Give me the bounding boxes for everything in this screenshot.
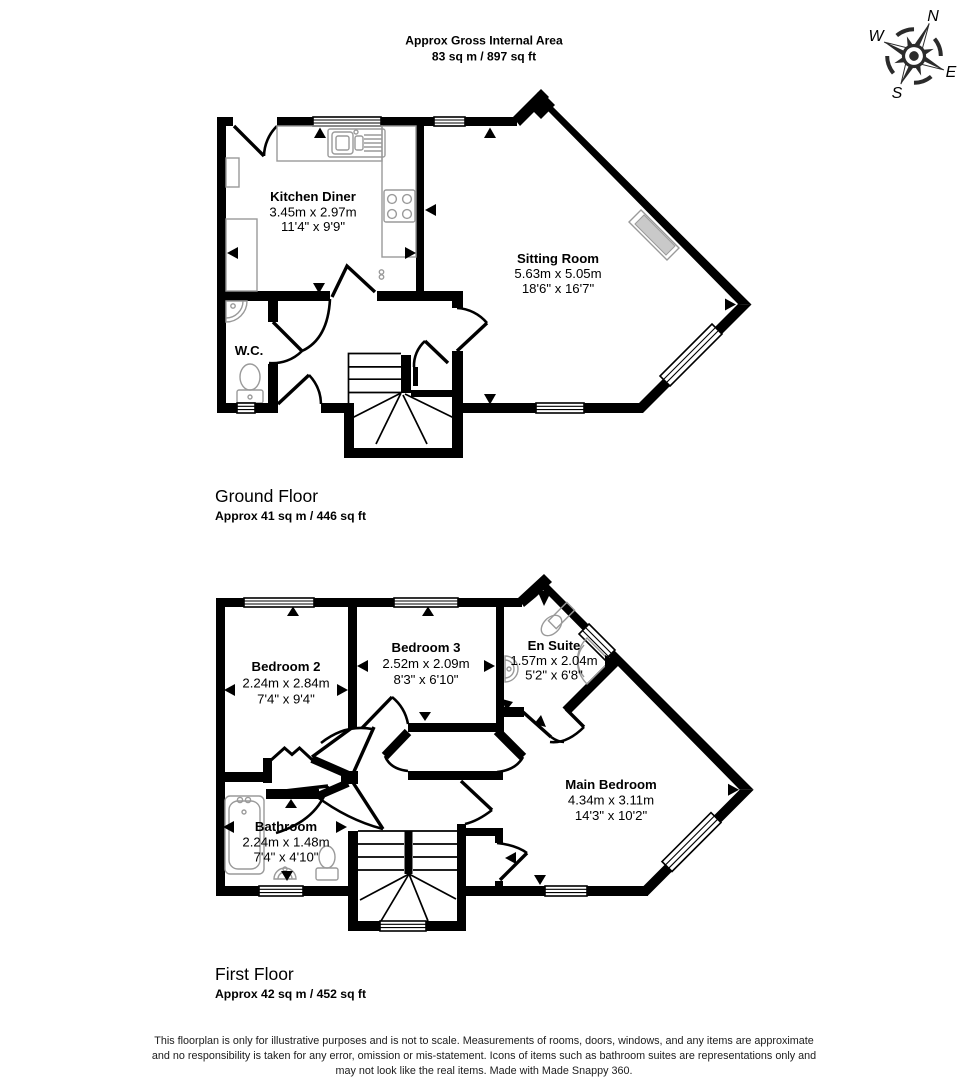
- svg-text:5'2" x 6'8": 5'2" x 6'8": [525, 668, 583, 683]
- svg-text:E: E: [946, 64, 957, 81]
- svg-text:This floorplan is only for ill: This floorplan is only for illustrative …: [154, 1035, 814, 1047]
- svg-text:1.57m x 2.04m: 1.57m x 2.04m: [510, 653, 597, 668]
- svg-text:4.34m x 3.11m: 4.34m x 3.11m: [568, 793, 654, 808]
- svg-text:Approx 42 sq m / 452 sq ft: Approx 42 sq m / 452 sq ft: [215, 987, 366, 1001]
- svg-text:Sitting Room: Sitting Room: [517, 251, 599, 266]
- svg-text:N: N: [927, 8, 939, 25]
- svg-text:3.45m x 2.97m: 3.45m x 2.97m: [269, 205, 356, 220]
- svg-text:5.63m x 5.05m: 5.63m x 5.05m: [514, 266, 601, 281]
- svg-text:W.C.: W.C.: [235, 343, 264, 358]
- svg-text:Bedroom 2: Bedroom 2: [252, 659, 321, 674]
- svg-text:S: S: [892, 85, 903, 102]
- svg-text:11'4" x 9'9": 11'4" x 9'9": [281, 219, 345, 234]
- svg-text:First Floor: First Floor: [215, 964, 294, 984]
- svg-text:2.24m x 2.84m: 2.24m x 2.84m: [242, 676, 329, 691]
- svg-text:7'4" x 9'4": 7'4" x 9'4": [257, 692, 315, 707]
- svg-text:and no responsibility is taken: and no responsibility is taken for any e…: [152, 1050, 816, 1062]
- svg-text:Kitchen Diner: Kitchen Diner: [270, 189, 356, 204]
- svg-text:W: W: [868, 28, 885, 45]
- svg-text:18'6" x 16'7": 18'6" x 16'7": [522, 281, 595, 296]
- svg-text:Bathroom: Bathroom: [255, 819, 317, 834]
- svg-text:7'4" x 4'10": 7'4" x 4'10": [254, 850, 319, 865]
- svg-text:Bedroom 3: Bedroom 3: [392, 640, 461, 655]
- svg-text:En Suite: En Suite: [528, 638, 581, 653]
- svg-text:Approx Gross Internal Area: Approx Gross Internal Area: [405, 34, 563, 48]
- svg-text:83 sq m / 897 sq ft: 83 sq m / 897 sq ft: [432, 50, 536, 64]
- svg-text:8'3" x 6'10": 8'3" x 6'10": [394, 672, 459, 687]
- svg-text:2.52m x 2.09m: 2.52m x 2.09m: [382, 656, 469, 671]
- svg-text:may not look like the real ite: may not look like the real items. Made w…: [335, 1065, 632, 1077]
- svg-text:Ground Floor: Ground Floor: [215, 486, 318, 506]
- svg-text:2.24m x 1.48m: 2.24m x 1.48m: [242, 835, 329, 850]
- svg-text:Approx 41 sq m / 446 sq ft: Approx 41 sq m / 446 sq ft: [215, 509, 366, 523]
- svg-text:Main Bedroom: Main Bedroom: [565, 777, 657, 792]
- svg-text:14'3" x 10'2": 14'3" x 10'2": [575, 808, 648, 823]
